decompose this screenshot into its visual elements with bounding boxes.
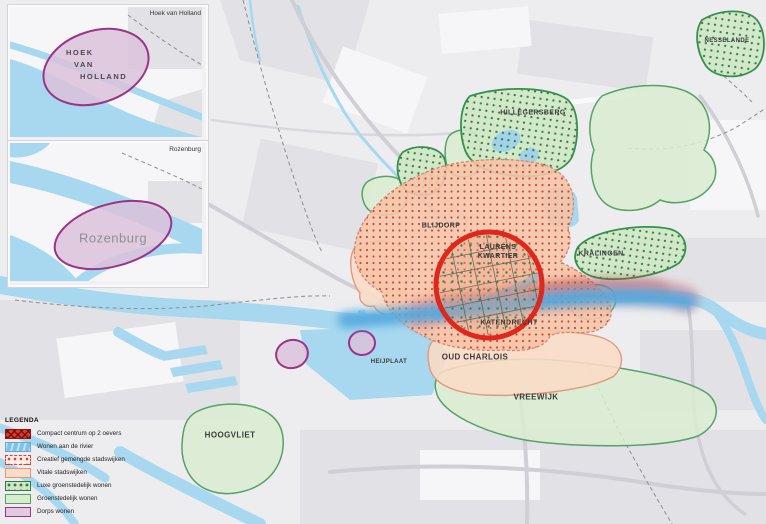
legend-swatch-dorps <box>5 507 31 517</box>
hoek-line1: HOEK <box>66 47 127 59</box>
legend-label: Vitale stadswijken <box>37 469 87 476</box>
legend-swatch-luxe-groen <box>5 481 31 491</box>
hoek-line3: HOLLAND <box>80 71 127 83</box>
region-label-kralingen: KRALINGEN <box>578 251 623 258</box>
legend-item-dorps: Dorps wonen <box>5 505 125 518</box>
zone-hoogvliet <box>182 404 283 493</box>
zone-heijplaat <box>349 331 375 355</box>
inset-hoek-van-holland: Hoek van Holland HOEK VAN HOLLAND <box>8 5 208 143</box>
legend-item-creatief: Creatief gemengde stadswijken <box>5 453 125 466</box>
inset-rozenburg: Rozenburg Rozenburg <box>8 141 208 287</box>
legend-title: LEGENDA <box>5 417 125 424</box>
legend-label: Groenstedelijk wonen <box>37 495 98 502</box>
region-label-vreewijk: VREEWIJK <box>514 393 559 402</box>
legend-swatch-compact-centrum <box>5 429 31 439</box>
legend-item-vitale: Vitale stadswijken <box>5 466 125 479</box>
legend-swatch-wonen-rivier <box>5 442 31 452</box>
region-label-hillegersberg: HILLEGERSBERG <box>500 110 565 117</box>
legend: LEGENDA Compact centrum op 2 oevers Wone… <box>5 417 125 518</box>
legend-item-wonen-rivier: Wonen aan de rivier <box>5 440 125 453</box>
legend-label: Creatief gemengde stadswijken <box>37 456 125 463</box>
region-label-nesselande: NESSELANDE <box>704 38 749 44</box>
inset-rozenburg-area-label: Rozenburg <box>79 231 147 246</box>
rotterdam-woonmilieus-map: BLIJDORP LAURENS KWARTIER KATENDRECHT OU… <box>0 0 766 524</box>
laurens-line2: KWARTIER <box>478 252 519 261</box>
legend-item-groen: Groenstedelijk wonen <box>5 492 125 505</box>
legend-item-luxe-groen: Luxe groenstedelijk wonen <box>5 479 125 492</box>
region-label-katendrecht: KATENDRECHT <box>480 320 537 327</box>
region-label-laurens-kwartier: LAURENS KWARTIER <box>478 243 519 261</box>
legend-swatch-groen <box>5 494 31 504</box>
legend-label: Luxe groenstedelijk wonen <box>37 482 112 489</box>
inset-hoek-corner-label: Hoek van Holland <box>150 10 201 17</box>
legend-swatch-vitale <box>5 468 31 478</box>
inset-rozenburg-map <box>10 143 202 281</box>
inset-rozenburg-corner-label: Rozenburg <box>169 146 201 153</box>
legend-swatch-creatief <box>5 455 31 465</box>
legend-label: Wonen aan de rivier <box>37 443 93 450</box>
inset-hoek-area-label: HOEK VAN HOLLAND <box>66 47 127 83</box>
laurens-line1: LAURENS <box>478 243 519 252</box>
hoek-line2: VAN <box>74 59 127 71</box>
region-label-heijplaat: HEIJPLAAT <box>371 359 408 365</box>
legend-item-compact-centrum: Compact centrum op 2 oevers <box>5 427 125 440</box>
region-label-oud-charlois: OUD CHARLOIS <box>442 353 509 362</box>
region-label-blijdorp: BLIJDORP <box>422 223 461 230</box>
region-label-hoogvliet: HOOGVLIET <box>205 431 256 440</box>
legend-label: Compact centrum op 2 oevers <box>37 430 121 437</box>
legend-label: Dorps wonen <box>37 508 74 515</box>
